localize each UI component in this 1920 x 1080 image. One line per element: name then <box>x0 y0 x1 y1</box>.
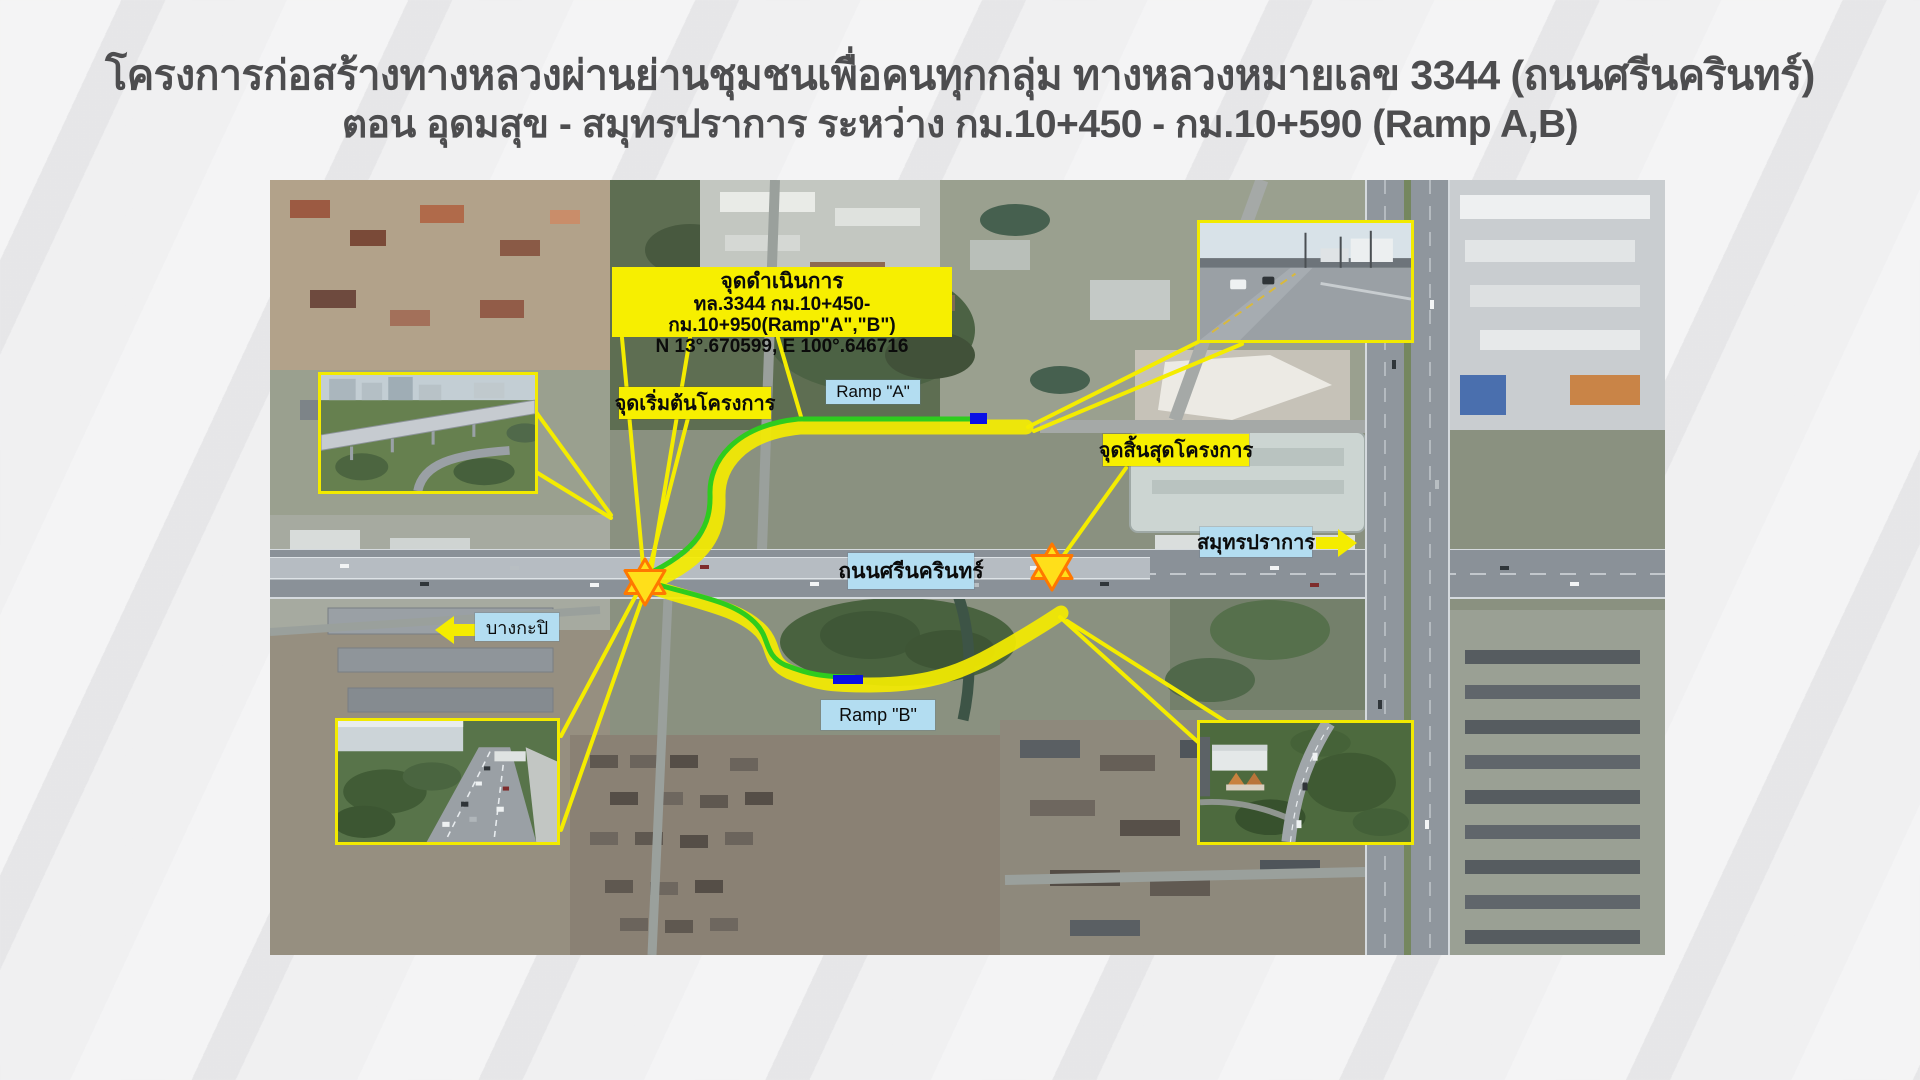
satellite-map: จุดดำเนินการ ทล.3344 กม.10+450-กม.10+950… <box>270 180 1665 955</box>
street-view-graphic <box>1200 223 1411 340</box>
inset-photo-local-road-aerial <box>1197 720 1414 845</box>
label-samut-prakan-direction: สมุทรปราการ <box>1200 527 1312 557</box>
local-road-aerial-graphic <box>1200 723 1411 842</box>
page-title: โครงการก่อสร้างทางหลวงผ่านย่านชุมชนเพื่อ… <box>0 50 1920 150</box>
footer: สอบถามข้อมูลเพิ่มเติม ได้ที่แขวงฯ ☎ 02 3… <box>0 960 1920 1080</box>
viaduct-aerial-graphic <box>321 375 535 491</box>
traffic-aerial-graphic <box>338 721 557 842</box>
label-project-end: จุดสิ้นสุดโครงการ <box>1103 434 1249 466</box>
work-location-callout: จุดดำเนินการ ทล.3344 กม.10+450-กม.10+950… <box>612 267 952 337</box>
title-line-1: โครงการก่อสร้างทางหลวงผ่านย่านชุมชนเพื่อ… <box>0 50 1920 101</box>
label-bang-kapi-direction: บางกะปิ <box>475 613 559 641</box>
inset-photo-traffic-aerial <box>335 718 560 845</box>
label-srinagarindra-road: ถนนศรีนครินทร์ <box>848 553 974 589</box>
label-ramp-b: Ramp "B" <box>821 700 935 730</box>
label-ramp-a: Ramp "A" <box>826 380 920 404</box>
inset-photo-street-view <box>1197 220 1414 343</box>
title-line-2: ตอน อุดมสุข - สมุทรปราการ ระหว่าง กม.10+… <box>0 101 1920 150</box>
label-project-start: จุดเริ่มต้นโครงการ <box>619 387 771 419</box>
callout-chainage: ทล.3344 กม.10+450-กม.10+950(Ramp"A","B") <box>618 294 946 337</box>
inset-photo-viaduct-aerial <box>318 372 538 494</box>
callout-coordinates: N 13°.670599, E 100°.646716 <box>618 336 946 357</box>
callout-title: จุดดำเนินการ <box>618 270 946 294</box>
